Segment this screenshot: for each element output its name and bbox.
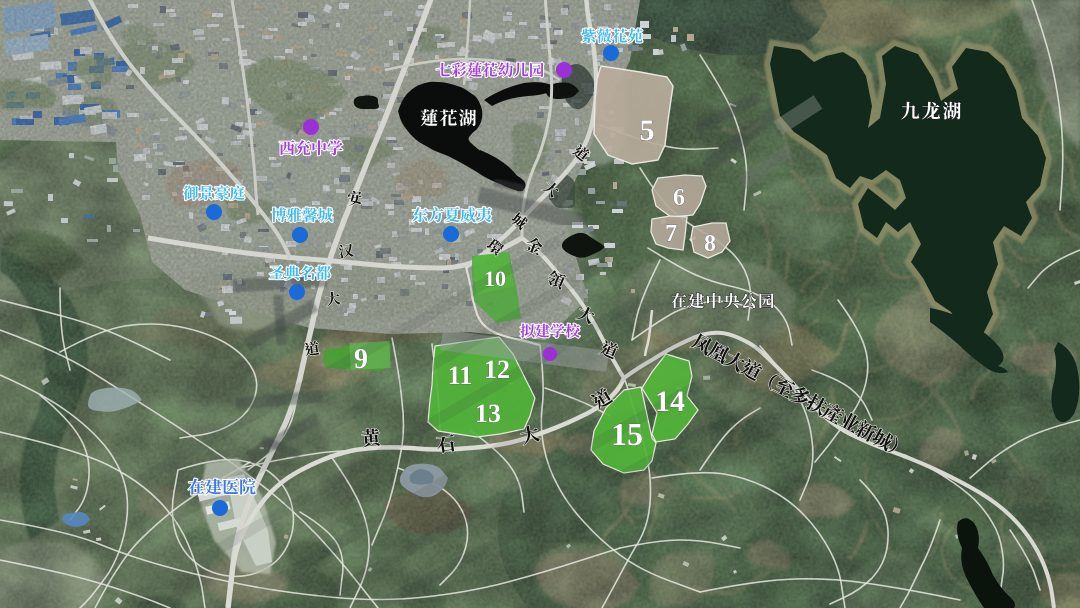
svg-text:15: 15	[611, 416, 643, 452]
svg-text:13: 13	[475, 399, 501, 428]
svg-text:14: 14	[655, 385, 685, 418]
svg-text:7: 7	[665, 221, 677, 247]
svg-text:6: 6	[673, 185, 685, 211]
svg-text:12: 12	[484, 355, 510, 384]
svg-text:11: 11	[448, 361, 473, 390]
svg-text:9: 9	[354, 344, 368, 375]
svg-text:5: 5	[640, 114, 655, 147]
svg-text:10: 10	[484, 266, 506, 291]
svg-text:8: 8	[704, 231, 716, 257]
